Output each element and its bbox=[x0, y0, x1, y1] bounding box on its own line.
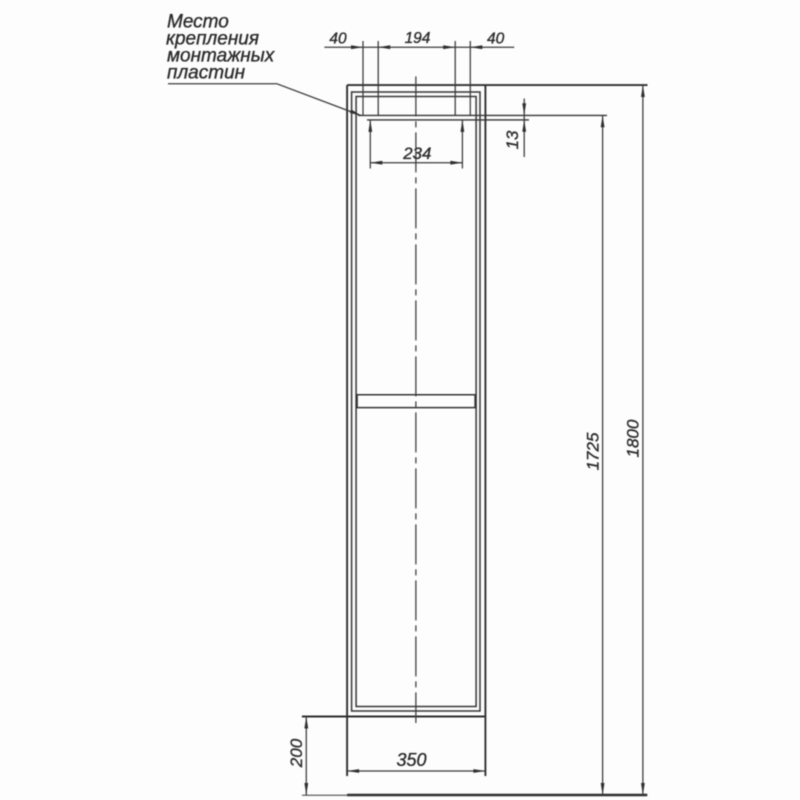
svg-text:пластин: пластин bbox=[167, 62, 246, 83]
svg-text:1800: 1800 bbox=[624, 419, 643, 457]
svg-text:194: 194 bbox=[405, 30, 431, 47]
svg-text:40: 40 bbox=[329, 31, 347, 48]
svg-text:40: 40 bbox=[487, 31, 505, 48]
svg-text:234: 234 bbox=[402, 144, 431, 163]
svg-text:200: 200 bbox=[287, 738, 306, 768]
svg-text:13: 13 bbox=[503, 130, 522, 149]
svg-text:1725: 1725 bbox=[584, 432, 603, 470]
svg-text:350: 350 bbox=[396, 750, 426, 770]
